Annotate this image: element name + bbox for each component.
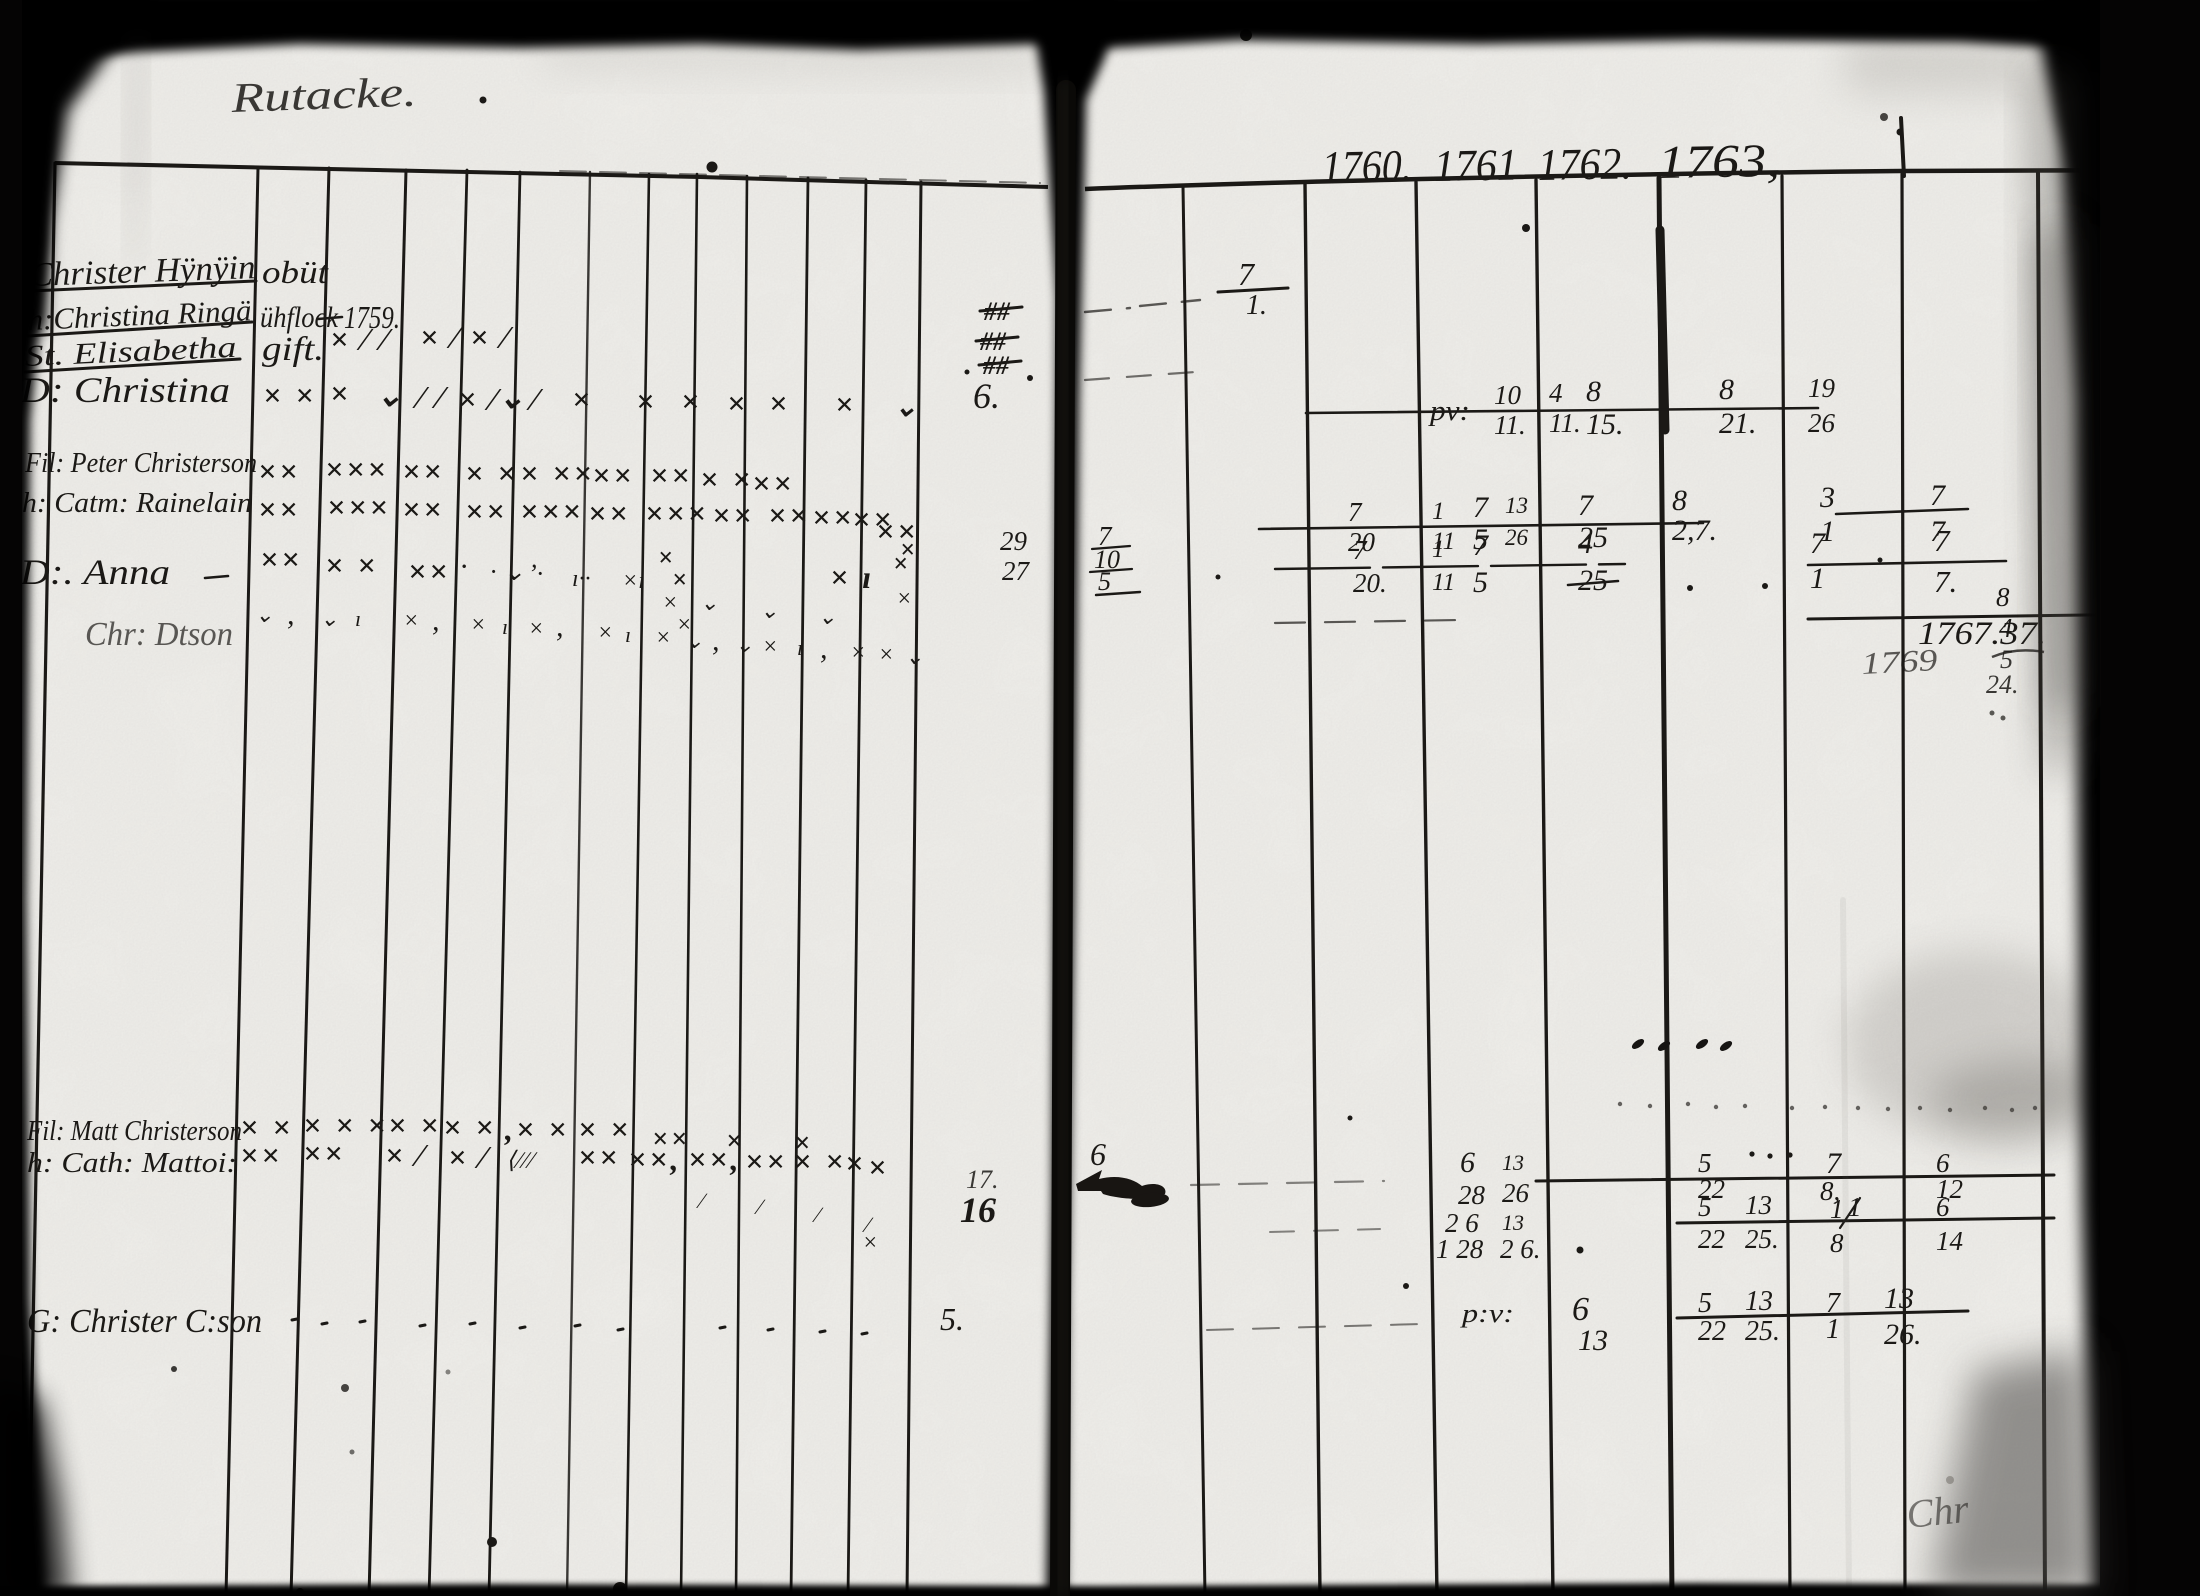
svg-text:11: 11 [1432,569,1455,596]
svg-text:× ×: × × [263,377,316,413]
svg-text:⌄: ⌄ [685,628,703,653]
svg-text:ı: ı [797,635,803,660]
svg-text:×××: ××× [325,451,389,487]
svg-text:×: × [850,640,866,666]
svg-text:ı: ı [625,622,631,647]
svg-text:1767.37.: 1767.37. [1918,616,2046,652]
svg-text:×: × [597,620,613,646]
svg-text:3: 3 [1819,481,1835,514]
svg-text:×: × [655,625,671,651]
svg-text:6: 6 [1572,1291,1589,1328]
svg-text:h: Cath: Mattoi:: h: Cath: Mattoi: [27,1148,237,1179]
svg-text:14: 14 [1936,1226,1963,1256]
svg-text:×: × [726,1126,742,1157]
svg-text:×: × [658,543,673,572]
svg-text:×: × [845,1145,866,1181]
svg-text:13: 13 [1505,493,1528,518]
svg-text:××: ×× [812,499,854,535]
svg-text:7: 7 [1473,529,1490,562]
svg-text:8: 8 [1586,375,1601,408]
svg-text:×: × [868,1149,889,1185]
svg-text:1 28: 1 28 [1436,1234,1484,1264]
svg-text:26: 26 [1502,1178,1530,1208]
svg-text:pv:: pv: [1428,396,1470,427]
svg-text:×: × [878,642,894,668]
svg-text:2 6.: 2 6. [1500,1234,1541,1264]
svg-text:26.: 26. [1884,1318,1922,1351]
svg-text:G: Christer C:son: G: Christer C:son [27,1303,262,1340]
svg-text:4: 4 [1549,378,1563,408]
svg-text:×ı: ×ı [622,568,645,594]
svg-text:××: ×× [402,453,444,489]
svg-text:6: 6 [1090,1136,1106,1172]
svg-text:××: ×× [588,495,630,531]
svg-text:××: ×× [258,491,300,527]
svg-text:13: 13 [1502,1210,1524,1235]
svg-text:××: ×× [650,457,692,493]
svg-text:⌄: ⌄ [320,606,338,631]
svg-text:21.: 21. [1719,407,1757,440]
svg-text:13: 13 [1578,1324,1608,1357]
svg-text:13: 13 [1745,1190,1772,1220]
svg-text:⌄: ⌄ [700,590,718,615]
svg-text:7: 7 [1353,535,1368,565]
svg-text:Rutacke.: Rutacke. [229,70,417,122]
svg-text:,: , [556,610,564,643]
svg-text:× ×: × × [465,455,518,491]
svg-text:1: 1 [1810,562,1825,595]
svg-text:××: ×× [465,493,507,529]
svg-text:27: 27 [1002,556,1031,586]
svg-text:Chr: Dtson: Chr: Dtson [85,616,233,653]
svg-text:7: 7 [1473,491,1490,524]
svg-text:× ××: × ×× [520,455,595,491]
svg-text:⟨∕∕∕: ⟨∕∕∕ [506,1148,538,1174]
svg-text:×: × [835,386,856,422]
svg-text:Fil: Peter Christerson: Fil: Peter Christerson [24,448,257,479]
svg-text:1.: 1. [1246,290,1267,321]
svg-text:1760.: 1760. [1321,140,1412,192]
svg-text:⌄: ⌄ [498,379,528,415]
svg-text:ı: ı [355,606,361,631]
svg-text:∕ ∕: ∕ ∕ [412,379,449,415]
svg-text:,: , [287,598,295,631]
svg-text:⌄: ⌄ [905,644,923,669]
svg-text:16: 16 [960,1190,996,1230]
svg-text:15.: 15. [1586,408,1624,441]
svg-text:7: 7 [1930,479,1947,512]
svg-text:·: · [460,550,468,583]
svg-text:×: × [769,385,790,421]
svg-text:4: 4 [1578,527,1593,560]
svg-text:××: ×× [752,465,794,501]
svg-text:×: × [681,383,702,419]
svg-text:⌄: ⌄ [735,632,753,657]
svg-text:h: Catm: Rainelain: h: Catm: Rainelain [22,488,252,519]
svg-text:××: ×× [408,553,450,589]
svg-text:× ∕: × ∕ [420,319,464,355]
svg-text:19: 19 [1808,373,1836,403]
svg-text:××: ×× [303,1135,345,1171]
svg-text:1763,: 1763, [1657,135,1780,189]
svg-text:1762.: 1762. [1537,138,1632,190]
svg-text:7: 7 [1934,523,1951,558]
svg-text:5: 5 [1098,567,1111,596]
svg-text:×: × [330,375,351,411]
svg-text:· ⌄: · ⌄ [490,557,525,586]
svg-text:× ı: × ı [830,559,874,595]
svg-text:×: × [893,549,908,578]
svg-text:××: ×× [768,497,810,533]
svg-text:××: ×× [260,541,302,577]
svg-text:,: , [432,604,440,637]
svg-text:××: ×× [592,457,634,493]
svg-text:1769: 1769 [1861,642,1939,681]
svg-text:××: ×× [258,453,300,489]
svg-text:××: ×× [240,1137,282,1173]
svg-text:5: 5 [1473,566,1488,599]
svg-text:p:v:: p:v: [1460,1299,1514,1328]
svg-text:××: ×× [578,1139,620,1175]
svg-text:×: × [470,612,486,638]
svg-text:8: 8 [1672,484,1687,517]
svg-text:×××: ××× [327,489,391,525]
svg-text:××: ×× [712,497,754,533]
svg-text:28: 28 [1458,1180,1486,1210]
svg-text:6.: 6. [973,376,1000,416]
svg-text:1: 1 [1432,498,1445,525]
svg-text:××: ×× [652,1124,690,1155]
svg-text:25.: 25. [1745,1224,1779,1254]
svg-text:×: × [727,385,748,421]
svg-text:5.: 5. [940,1301,964,1337]
svg-text:obüt: obüt [262,254,329,290]
svg-text:7: 7 [1810,527,1827,560]
svg-text:1: 1 [1826,1314,1840,1345]
svg-text:×: × [862,1230,878,1256]
svg-text:×: × [896,586,912,612]
svg-text:6: 6 [1460,1146,1475,1179]
svg-text:× ∕: × ∕ [385,1137,429,1173]
svg-text:×××: ××× [520,493,584,529]
svg-text:5: 5 [1698,1288,1712,1319]
svg-text:××: ×× [402,491,444,527]
svg-text:24.: 24. [1986,670,2019,699]
svg-text:×: × [528,616,544,642]
svg-text:ı··: ı·· [572,566,591,592]
svg-text:’·: ’· [528,559,543,588]
svg-text:29: 29 [1000,526,1028,556]
svg-text:22: 22 [1698,1224,1725,1254]
svg-text:25: 25 [1578,564,1608,597]
svg-text:5: 5 [1698,1192,1712,1222]
svg-text:×: × [636,383,657,419]
svg-text:8: 8 [1996,582,2010,612]
svg-text:,: , [712,624,720,657]
svg-text:2,7.: 2,7. [1672,514,1717,547]
svg-text:× ∕: × ∕ [458,381,502,417]
svg-text:1: 1 [1830,1194,1844,1224]
svg-text:×××: ××× [645,495,709,531]
svg-text:25.: 25. [1745,1316,1780,1347]
svg-text:26: 26 [1808,408,1836,438]
svg-text:D: Christina: D: Christina [19,370,230,410]
svg-text:⌄: ⌄ [818,604,836,629]
svg-text:7: 7 [1578,489,1595,522]
svg-text:×: × [762,634,778,660]
svg-text:× ∕: × ∕ [448,1139,492,1175]
svg-text:⌄: ⌄ [894,392,917,423]
svg-text:× ∕ ∕: × ∕ ∕ [330,321,394,357]
svg-text:ı: ı [502,614,508,639]
svg-text:× ×: × × [700,461,753,497]
svg-text:22: 22 [1698,1316,1726,1347]
svg-text:×: × [403,608,419,634]
svg-text:11.: 11. [1549,408,1581,438]
svg-text:⌄: ⌄ [376,377,406,413]
svg-text:7.: 7. [1934,564,1957,599]
svg-text:,× ×: ,× × [504,1111,569,1147]
svg-text:26: 26 [1505,525,1529,550]
svg-text:7: 7 [1348,497,1363,527]
svg-text:6: 6 [1936,1192,1950,1222]
svg-text:××: ×× [745,1143,787,1179]
svg-text:8: 8 [1719,373,1734,406]
svg-text:×: × [572,381,593,417]
svg-text:1: 1 [1432,536,1445,563]
svg-text:D:. Anna: D:. Anna [19,552,170,592]
svg-text:7: 7 [1238,256,1256,292]
svg-text:Chr: Chr [1904,1486,1971,1537]
svg-text:× ∕: × ∕ [470,319,514,355]
svg-text:⌄: ⌄ [255,602,273,627]
svg-text:13: 13 [1884,1282,1914,1315]
svg-text:1761: 1761 [1433,140,1518,191]
svg-text:× ×: × × [325,547,378,583]
svg-text:13: 13 [1745,1286,1773,1317]
svg-text:,: , [820,632,828,665]
svg-text:13: 13 [1502,1150,1524,1175]
svg-text:Fil: Matt Christerson: Fil: Matt Christerson [26,1116,242,1147]
svg-text:8: 8 [1830,1228,1844,1258]
svg-text:11.: 11. [1494,410,1526,440]
svg-text:gift.: gift. [262,331,324,368]
svg-text:10: 10 [1494,380,1522,410]
svg-text:20.: 20. [1353,568,1387,598]
svg-text:⌄: ⌄ [760,598,778,623]
svg-text:×: × [794,1128,810,1159]
